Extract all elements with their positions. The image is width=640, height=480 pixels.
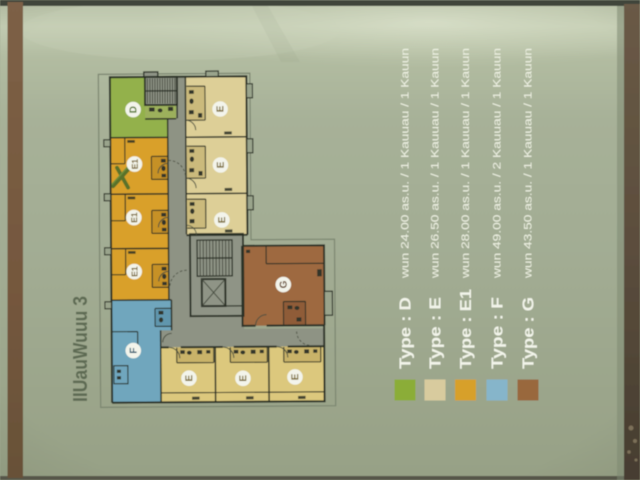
svg-text:wun 26.50 as.u. / 1 Kauuau / 1: wun 26.50 as.u. / 1 Kauuau / 1 Kauun: [430, 48, 442, 279]
svg-text:E: E: [184, 375, 195, 382]
svg-text:D: D: [128, 106, 139, 113]
svg-text:E1: E1: [129, 212, 139, 223]
svg-text:Type : E1: Type : E1: [458, 289, 475, 369]
svg-text:IIUauWuuu 3: IIUauWuuu 3: [70, 296, 92, 402]
svg-text:E: E: [215, 105, 226, 112]
svg-text:F: F: [129, 348, 140, 354]
svg-text:wun 43.50 as.u. / 1 Kauuau / 1: wun 43.50 as.u. / 1 Kauuau / 1 Kauun: [523, 48, 535, 279]
svg-text:G: G: [279, 280, 290, 288]
svg-text:wun 49.00 as.u. / 2 Kauuau / 1: wun 49.00 as.u. / 2 Kauuau / 1 Kauun: [492, 48, 504, 279]
svg-text:E1: E1: [129, 266, 139, 277]
svg-text:E1: E1: [130, 159, 140, 170]
svg-text:E: E: [238, 375, 249, 382]
svg-text:Type : G: Type : G: [521, 297, 538, 369]
svg-text:E: E: [217, 216, 228, 223]
svg-text:Type : F: Type : F: [490, 297, 507, 369]
svg-text:E: E: [290, 373, 301, 380]
svg-text:Type : D: Type : D: [398, 297, 415, 369]
svg-text:wun 28.00 as.u. / 1 Kauuau / 1: wun 28.00 as.u. / 1 Kauuau / 1 Kauun: [460, 48, 472, 279]
svg-text:wun 24.00 as.u. / 1 Kauuau / 1: wun 24.00 as.u. / 1 Kauuau / 1 Kauun: [400, 48, 412, 279]
svg-text:E: E: [216, 161, 227, 168]
svg-text:Type : E: Type : E: [428, 297, 445, 369]
